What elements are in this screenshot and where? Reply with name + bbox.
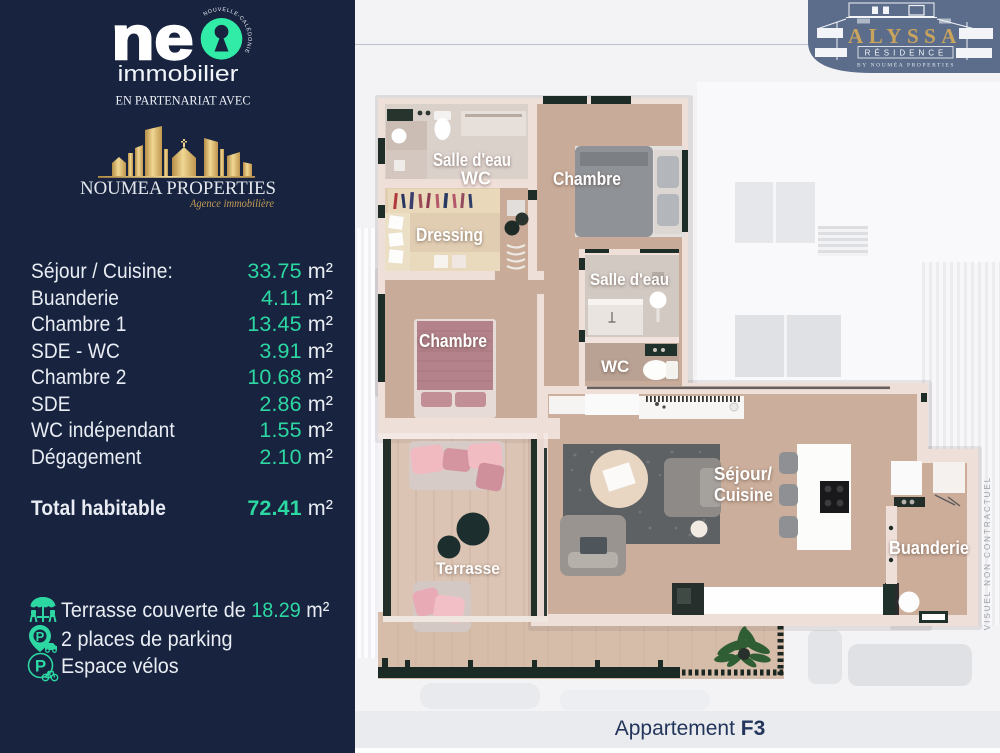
svg-text:Dressing: Dressing (416, 225, 483, 245)
svg-text:Salle d'eau: Salle d'eau (590, 270, 669, 289)
svg-text:immobilier: immobilier (118, 61, 240, 86)
svg-text:Buanderie: Buanderie (889, 538, 969, 558)
svg-text:ALYSSA: ALYSSA (848, 24, 962, 48)
svg-text:Cuisine: Cuisine (714, 485, 773, 505)
svg-text:RÉSIDENCE: RÉSIDENCE (865, 49, 948, 58)
svg-text:Agence immobilière: Agence immobilière (189, 198, 274, 210)
svg-text:NOUMEA PROPERTIES: NOUMEA PROPERTIES (80, 179, 276, 199)
svg-text:P: P (36, 629, 45, 644)
svg-text:BY NOUMÉA PROPERTIES: BY NOUMÉA PROPERTIES (857, 61, 955, 69)
svg-text:Chambre: Chambre (419, 331, 487, 351)
svg-text:Chambre: Chambre (553, 169, 621, 189)
svg-text:Terrasse: Terrasse (436, 559, 500, 578)
svg-text:EN PARTENARIAT AVEC: EN PARTENARIAT AVEC (116, 94, 251, 108)
svg-text:P: P (35, 657, 46, 676)
svg-text:VISUEL NON CONTRACTUEL: VISUEL NON CONTRACTUEL (983, 476, 992, 630)
svg-text:Salle d'eau: Salle d'eau (433, 150, 511, 170)
svg-text:WC: WC (601, 357, 629, 376)
svg-text:WC: WC (461, 169, 491, 189)
svg-text:Séjour/: Séjour/ (714, 464, 772, 484)
